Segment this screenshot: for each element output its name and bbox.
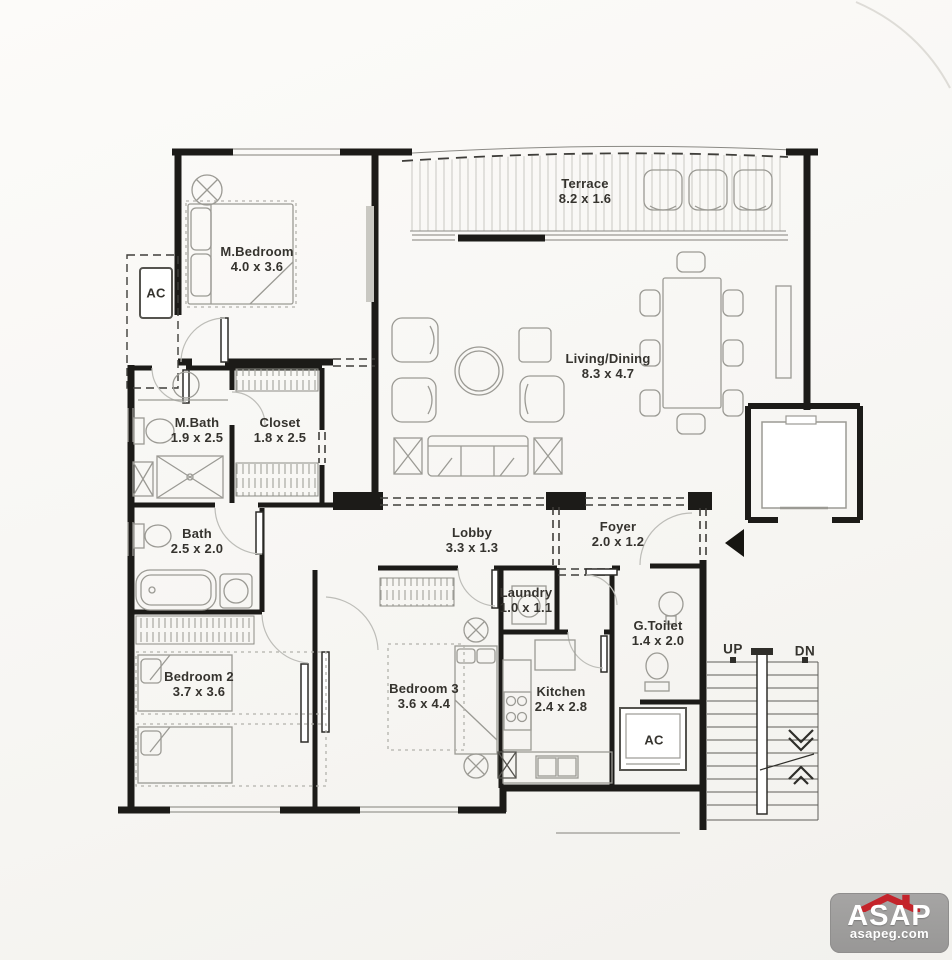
room-label-living-dining: Living/Dining 8.3 x 4.7: [566, 351, 651, 381]
room-labels: Terrace 8.2 x 1.6 M.Bedroom 4.0 x 3.6 AC…: [0, 0, 952, 960]
room-label-terrace: Terrace 8.2 x 1.6: [559, 176, 611, 206]
room-label-closet: Closet 1.8 x 2.5: [254, 415, 306, 445]
room-label-kitchen: Kitchen 2.4 x 2.8: [535, 684, 587, 714]
room-label-foyer: Foyer 2.0 x 1.2: [592, 519, 644, 549]
stairs-up-label: UP: [723, 642, 743, 657]
room-label-bath: Bath 2.5 x 2.0: [171, 526, 223, 556]
room-label-lobby: Lobby 3.3 x 1.3: [446, 525, 498, 555]
logo-site-text: asapeg.com: [850, 926, 929, 941]
stairs-dn-label: DN: [795, 644, 816, 659]
room-label-g-toilet: G.Toilet 1.4 x 2.0: [632, 618, 684, 648]
room-label-m-bedroom: M.Bedroom 4.0 x 3.6: [220, 244, 293, 274]
room-label-bedroom-2: Bedroom 2 3.7 x 3.6: [164, 669, 234, 699]
room-label-ac-top: AC: [146, 286, 165, 301]
room-label-bedroom-3: Bedroom 3 3.6 x 4.4: [389, 681, 459, 711]
room-label-m-bath: M.Bath 1.9 x 2.5: [171, 415, 223, 445]
room-label-laundry: Laundry 1.0 x 1.1: [500, 585, 553, 615]
asap-logo: ASAP asapeg.com: [830, 893, 949, 953]
floor-plan-page: Terrace 8.2 x 1.6 M.Bedroom 4.0 x 3.6 AC…: [0, 0, 952, 960]
room-label-ac-bottom: AC: [644, 733, 663, 748]
